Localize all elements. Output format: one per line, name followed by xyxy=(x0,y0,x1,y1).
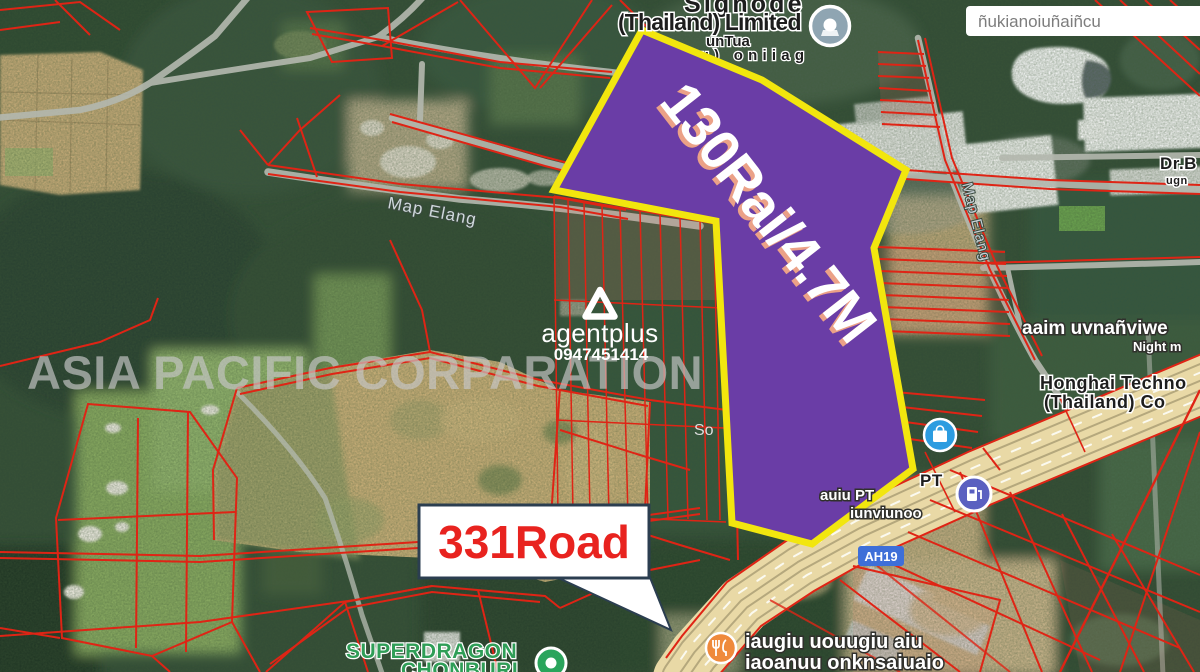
svg-text:331Road: 331Road xyxy=(438,516,630,568)
svg-text:ñukianoiuñaiñcu: ñukianoiuñaiñcu xyxy=(978,12,1101,31)
svg-text:(Thailand) Limited: (Thailand) Limited xyxy=(618,9,802,35)
svg-text:iaugiu uouugiu aiu: iaugiu uouugiu aiu xyxy=(745,631,923,653)
svg-text:agentplus: agentplus xyxy=(541,318,658,348)
svg-text:So: So xyxy=(694,422,714,439)
svg-text:PT: PT xyxy=(920,471,943,490)
svg-text:Dr.B: Dr.B xyxy=(1160,154,1197,173)
svg-text:0947451414: 0947451414 xyxy=(554,345,649,364)
svg-text:aaim uvnañviwe: aaim uvnañviwe xyxy=(1022,318,1168,339)
svg-text:iunviunoo: iunviunoo xyxy=(850,505,922,522)
svg-text:ugn: ugn xyxy=(1166,175,1188,187)
svg-text:CHONBURI: CHONBURI xyxy=(401,659,518,672)
svg-text:Night m: Night m xyxy=(1133,339,1181,354)
svg-text:iaoanuu onknsaiuaio: iaoanuu onknsaiuaio xyxy=(745,652,944,672)
svg-text:(Thailand) Co: (Thailand) Co xyxy=(1044,392,1166,412)
svg-text:Honghai Techno: Honghai Techno xyxy=(1040,373,1187,393)
svg-text:AH19: AH19 xyxy=(864,549,897,564)
svg-text:auiu PT: auiu PT xyxy=(820,487,874,504)
